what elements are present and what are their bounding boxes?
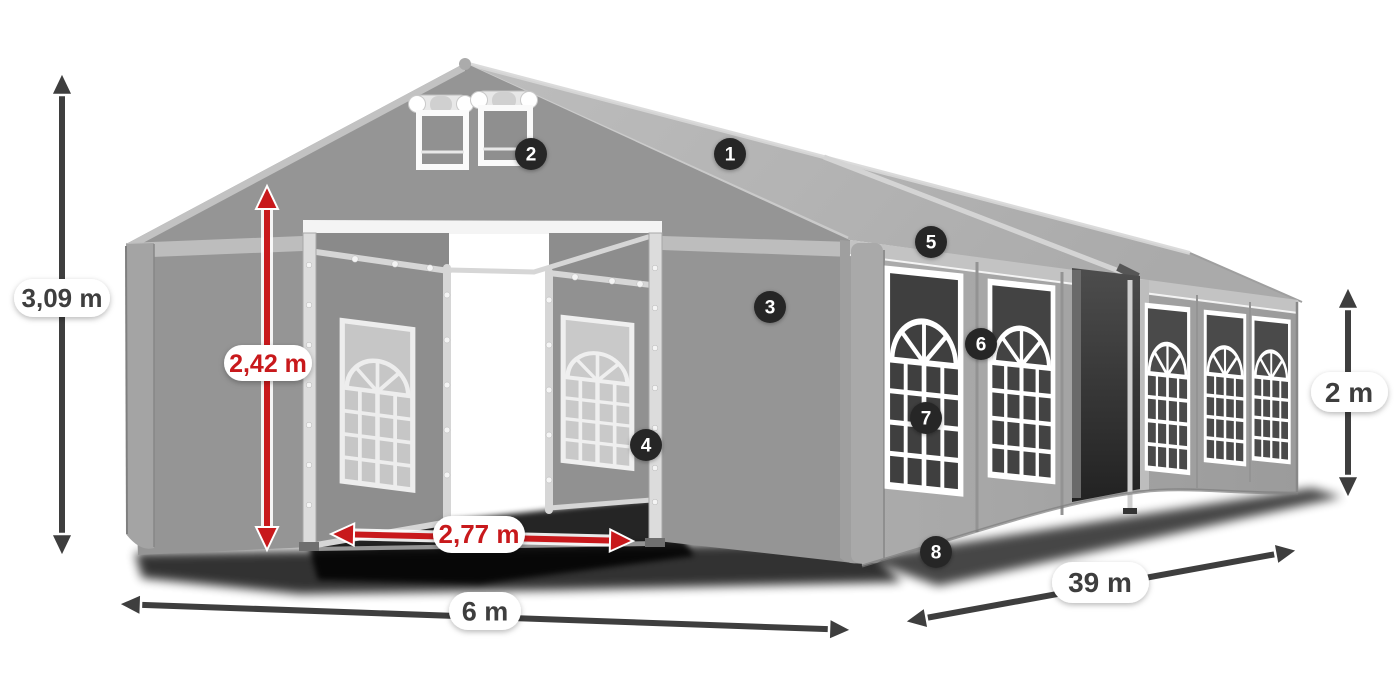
jamb-pole-left: [303, 233, 316, 545]
hotspot-badge-2[interactable]: 2: [515, 138, 547, 170]
hotspot-number: 2: [526, 145, 537, 166]
vent-window-left: [419, 113, 466, 167]
arrowhead-left-icon: [902, 607, 929, 633]
apex-cap: [459, 58, 471, 70]
side-window-3: [1146, 305, 1188, 472]
arrowhead-right-icon: [829, 618, 853, 641]
hotspot-number: 3: [765, 298, 776, 319]
arrowhead-up-icon: [51, 72, 73, 95]
front-left-edge: [126, 246, 127, 534]
dimension-side-length-label: 39 m: [1068, 567, 1132, 598]
arrowhead-down-icon: [1337, 476, 1359, 499]
side-corner-sleeve: [851, 243, 883, 563]
arrowhead-up-icon: [1337, 286, 1359, 309]
hotspot-badge-7[interactable]: 7: [910, 402, 942, 434]
gap-rolled-edge: [1072, 270, 1081, 498]
diagram-canvas: 3,09 m 2,42 m 2,77 m 6 m 39 m: [0, 0, 1400, 700]
jamb-foot-right: [645, 538, 665, 547]
vent-left-roll-cap: [409, 96, 426, 113]
corner-sleeve-left: [126, 243, 154, 549]
hotspot-number: 6: [976, 335, 987, 356]
hotspot-badge-6[interactable]: 6: [965, 328, 997, 360]
arrowhead-down-icon: [51, 534, 73, 557]
dimension-entrance-width-label: 2,77 m: [439, 519, 520, 549]
dimension-total-height-label: 3,09 m: [22, 283, 103, 313]
side-window-5: [1253, 318, 1289, 462]
dimension-side-wall-height: 2 m: [1311, 286, 1388, 499]
dimension-front-width-label: 6 m: [462, 596, 509, 626]
entrance-interior: [316, 233, 651, 547]
side-window-1: [887, 269, 960, 493]
hotspot-badge-5[interactable]: 5: [915, 226, 947, 258]
entrance-lintel: [303, 220, 662, 234]
side-window-2: [990, 282, 1053, 481]
hotspot-number: 1: [725, 145, 736, 166]
side-window-4: [1205, 312, 1244, 464]
dimension-front-width: 6 m: [118, 592, 853, 641]
dimension-entrance-height-label: 2,42 m: [229, 350, 307, 378]
hotspot-number: 4: [641, 436, 652, 457]
hotspot-badge-8[interactable]: 8: [920, 536, 952, 568]
hotspot-badge-4[interactable]: 4: [630, 429, 662, 461]
dimension-side-wall-height-label: 2 m: [1325, 377, 1373, 408]
hotspot-number: 8: [931, 543, 942, 564]
gap-pole-foot: [1123, 508, 1137, 514]
door-window-left: [342, 321, 413, 491]
door-window-right: [563, 317, 632, 468]
hotspot-badge-3[interactable]: 3: [754, 291, 786, 323]
hotspot-number: 7: [921, 409, 932, 430]
tent-dimension-diagram: 3,09 m 2,42 m 2,77 m 6 m 39 m: [0, 0, 1400, 700]
arrowhead-left-icon: [118, 593, 142, 616]
dimension-total-height: 3,09 m: [14, 72, 110, 557]
arrowhead-right-icon: [1273, 539, 1300, 565]
hotspot-badge-1[interactable]: 1: [714, 138, 746, 170]
hotspot-number: 5: [926, 233, 937, 254]
jamb-foot-left: [299, 542, 319, 551]
